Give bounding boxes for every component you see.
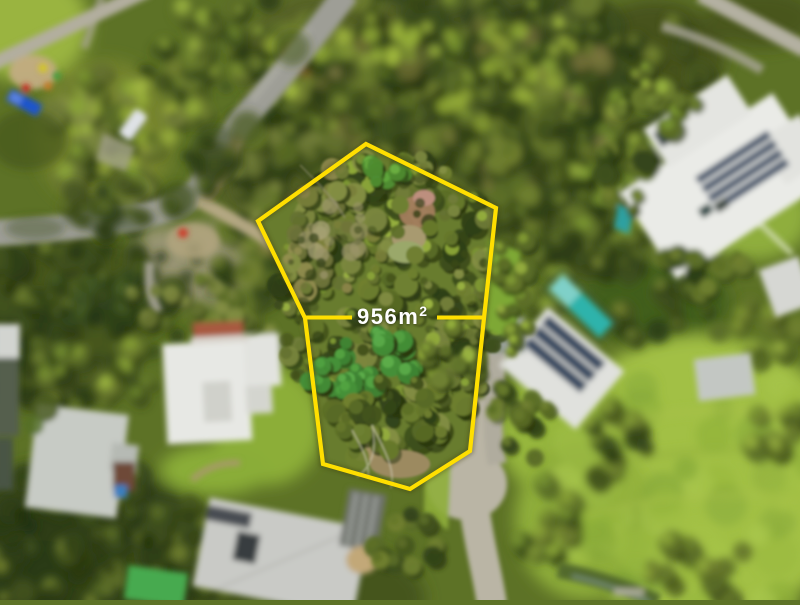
svg-text:956m2: 956m2 [357,303,429,329]
